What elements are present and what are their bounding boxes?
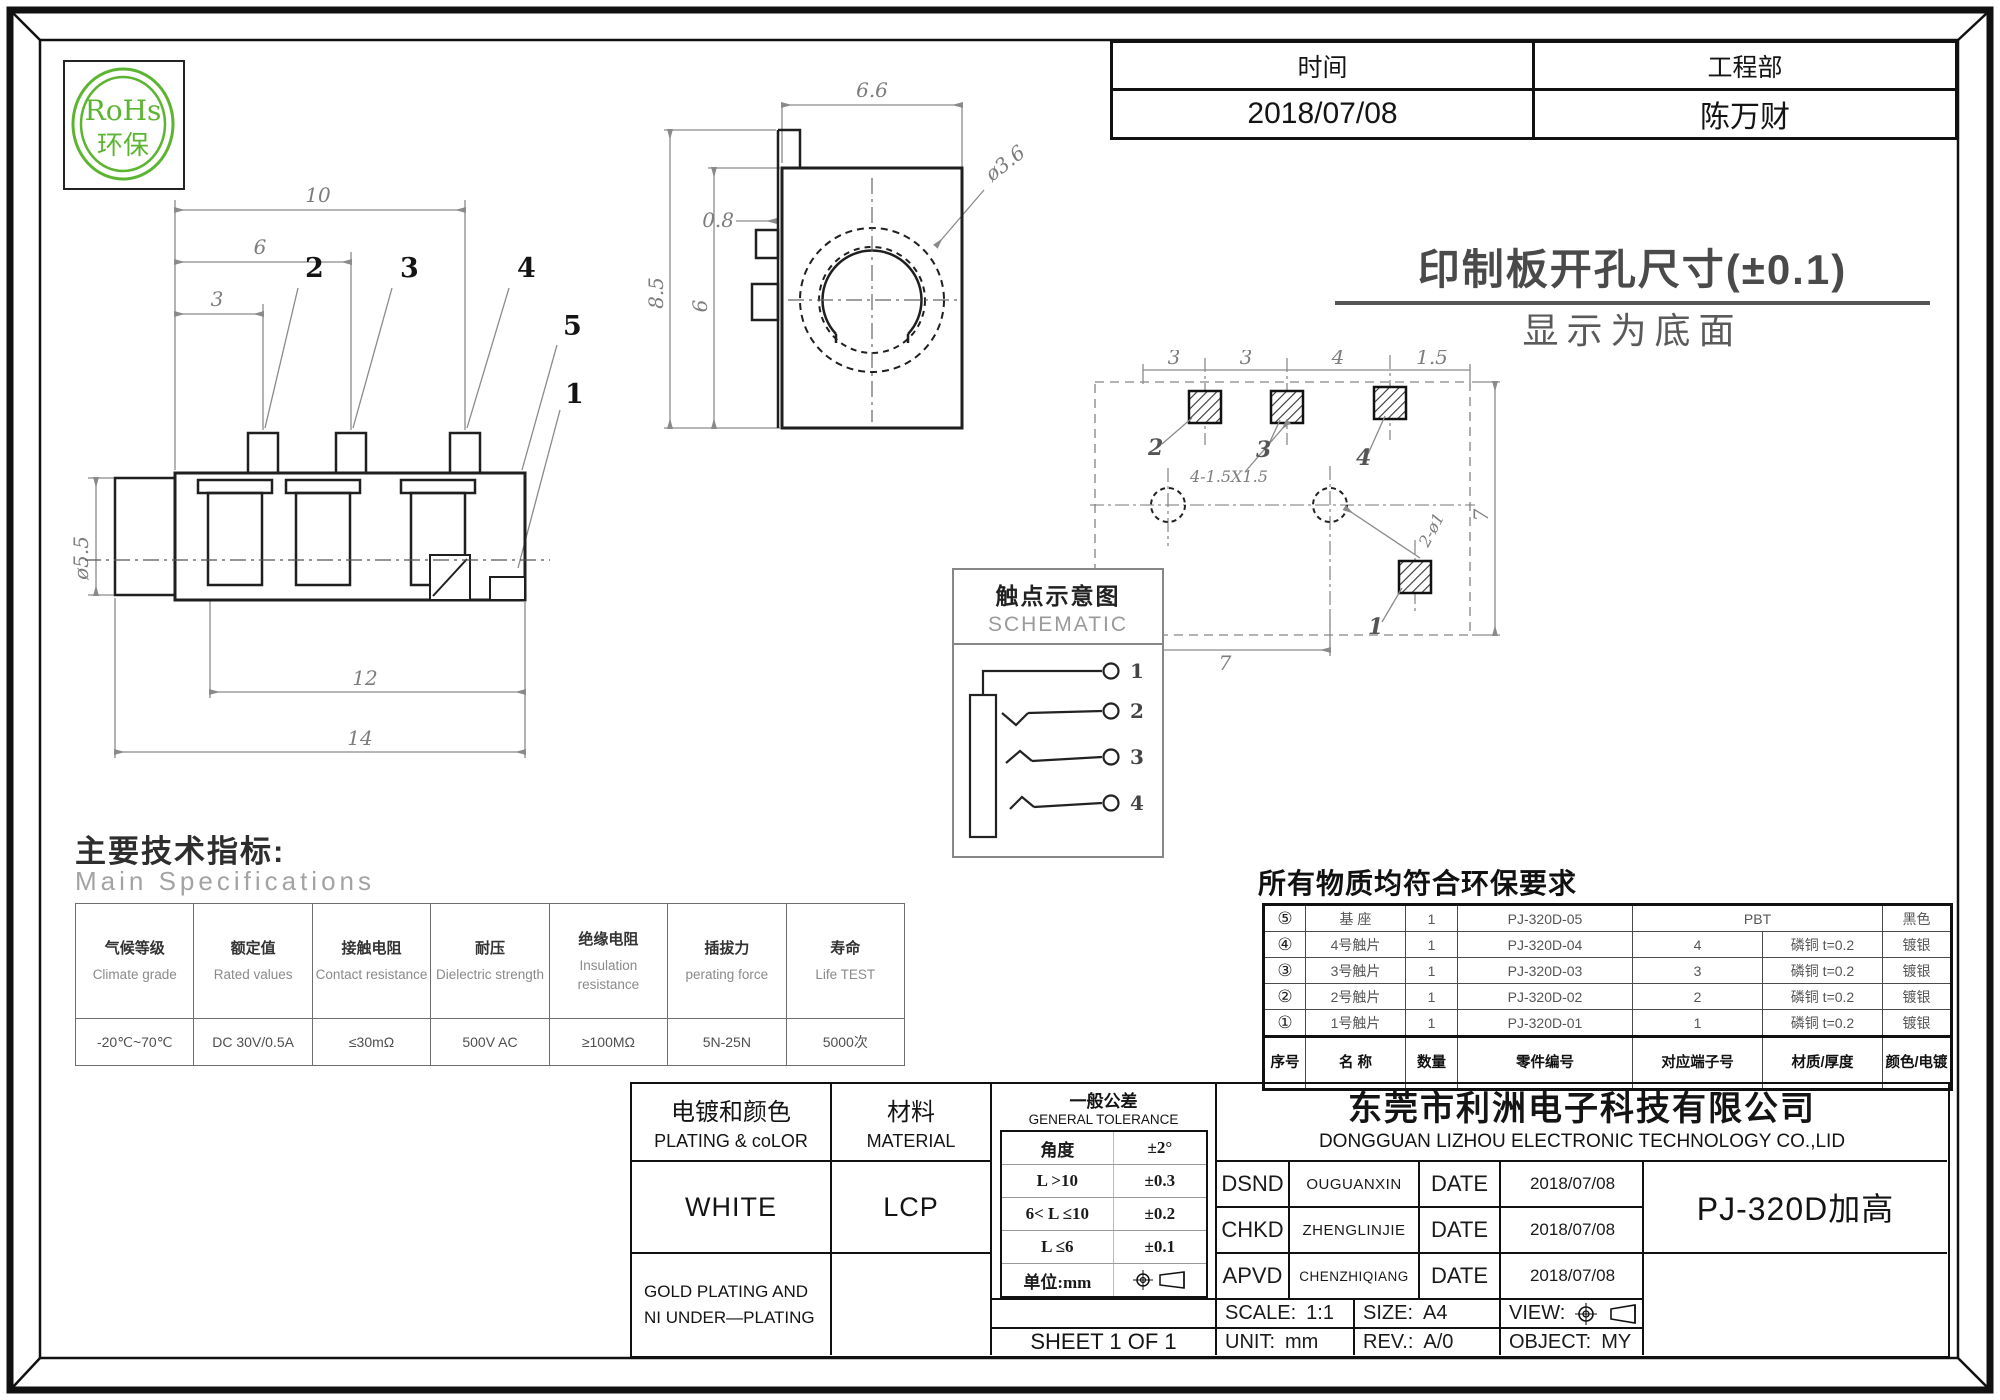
scale-size-view-row: SCALE: 1:1 SIZE: A4 VIEW:: [1217, 1300, 1644, 1329]
dim-8-5: 8.5: [644, 277, 668, 309]
front-dim-texts: 6.6 0.8 8.5 6 ø3.6: [644, 78, 1030, 312]
bom-row-3: ③ 3号触片 1 PJ-320D-03 3 磷铜 t=0.2 镀银: [1264, 958, 1952, 984]
contact-3: 3: [1130, 745, 1144, 769]
spec-value-dielectric: 500V AC: [431, 1019, 549, 1066]
bom-title: 所有物质均符合环保要求: [1258, 862, 1577, 902]
third-angle-cone-icon: [1157, 1271, 1187, 1289]
part-name-cell: PJ-320D加高: [1644, 1162, 1947, 1254]
tolerance-block: 一般公差 GENERAL TOLERANCE 角度±2° L >10±0.3 6…: [992, 1084, 1217, 1300]
plating-note-cell: GOLD PLATING AND NI UNDER—PLATING: [632, 1254, 832, 1355]
pcb-hole-note: 2-ø1: [1414, 510, 1448, 551]
spec-value-insulation: ≥100MΩ: [549, 1019, 667, 1066]
pcb-dim-1-5a: 1.5: [1416, 350, 1448, 369]
pcb-hole-title: 印制板开孔尺寸(±0.1): [1335, 236, 1930, 305]
object-cell: OBJECT: MY: [1501, 1329, 1644, 1355]
spec-heading-en: Main Specifications: [75, 866, 375, 897]
unit-mm-label: 单位:mm: [1002, 1264, 1115, 1296]
contact-2: 2: [1130, 699, 1144, 723]
pcb-bottom-view-label: 显示为底面: [1335, 302, 1930, 354]
pcb-label-2: 2: [1147, 435, 1163, 461]
projection-symbols-small: [1114, 1264, 1205, 1296]
spec-header-row: 气候等级Climate grade 额定值Rated values 接触电阻Co…: [76, 904, 905, 1019]
front-body-outline: [752, 130, 962, 428]
dim-12: 12: [352, 666, 377, 690]
unit-cell: UNIT: mm: [1217, 1329, 1355, 1355]
front-dim-lines: [664, 105, 984, 428]
spec-value-life: 5000次: [786, 1019, 904, 1066]
plating-header: 电镀和颜色 PLATING & coLOR: [632, 1084, 832, 1162]
material-value-cell: LCP: [832, 1162, 992, 1254]
schematic-contact-numbers: 1 2 3 4: [1130, 659, 1144, 815]
dept-value: 陈万财: [1535, 91, 1955, 137]
pin-label-2: 2: [305, 253, 324, 284]
sign-row-chkd: CHKD ZHENGLINJIE DATE 2018/07/08: [1217, 1208, 1644, 1254]
dim-3: 3: [211, 287, 224, 311]
company-header: 东莞市利洲电子科技有限公司 DONGGUAN LIZHOU ELECTRONIC…: [1217, 1084, 1947, 1162]
bom-row-5: ⑤ 基 座 1 PJ-320D-05 PBT 黑色: [1264, 905, 1952, 932]
material-header: 材料 MATERIAL: [832, 1084, 992, 1162]
view-target-icon: [1575, 1303, 1597, 1325]
empty-cell-material: [832, 1254, 992, 1355]
side-body-outline: [115, 433, 525, 600]
size-cell: SIZE: A4: [1355, 1300, 1501, 1327]
front-view-drawing: 6.6 0.8 8.5 6 ø3.6: [640, 78, 1060, 450]
schematic-title-cn: 触点示意图: [954, 577, 1162, 611]
pcb-pad-note: 4-1.5X1.5: [1189, 467, 1268, 486]
spec-value-contact: ≤30mΩ: [312, 1019, 430, 1066]
pcb-pads: [1189, 387, 1431, 593]
spec-table: 气候等级Climate grade 额定值Rated values 接触电阻Co…: [75, 903, 905, 1066]
bom-row-1: ① 1号触片 1 PJ-320D-01 1 磷铜 t=0.2 镀银: [1264, 1010, 1952, 1037]
spec-col-contact: 接触电阻Contact resistance: [312, 904, 430, 1019]
side-view-drawing: 10 6 3 ø5.5 12 14 2 3 4: [60, 140, 640, 790]
view-cone-icon: [1607, 1304, 1639, 1324]
pcb-label-4: 4: [1356, 445, 1371, 471]
dim-6b: 6: [688, 299, 712, 312]
pin-label-1: 1: [565, 379, 584, 410]
pcb-label-1: 1: [1368, 614, 1383, 640]
bom-table: ⑤ 基 座 1 PJ-320D-05 PBT 黑色 ④ 4号触片 1 PJ-32…: [1262, 903, 1953, 1091]
dim-14: 14: [347, 726, 372, 750]
tolerance-spacer-cell: [992, 1300, 1217, 1329]
dim-dia-5-5: ø5.5: [69, 536, 93, 581]
front-centerlines: [788, 178, 958, 422]
schematic-title-en: SCHEMATIC: [954, 613, 1162, 645]
spec-value-row: -20℃~70℃ DC 30V/0.5A ≤30mΩ 500V AC ≥100M…: [76, 1019, 905, 1066]
drawing-sheet: RoHs 环保 时间 工程部 2018/07/08 陈万财: [0, 0, 2000, 1400]
spec-col-climate: 气候等级Climate grade: [76, 904, 194, 1019]
spec-col-rated: 额定值Rated values: [194, 904, 312, 1019]
dim-10: 10: [305, 183, 331, 207]
bom-row-2: ② 2号触片 1 PJ-320D-02 2 磷铜 t=0.2 镀银: [1264, 984, 1952, 1010]
pin-label-5: 5: [563, 311, 582, 342]
contact-4: 4: [1130, 791, 1144, 815]
third-angle-target-icon: [1133, 1270, 1153, 1290]
title-block: 电镀和颜色 PLATING & coLOR 材料 MATERIAL 一般公差 G…: [630, 1082, 1950, 1358]
pcb-dim-7-right: 7: [1469, 508, 1493, 521]
scale-cell: SCALE: 1:1: [1217, 1300, 1355, 1327]
pin-label-4: 4: [517, 253, 536, 284]
pcb-label-3: 3: [1256, 437, 1271, 463]
bom-row-4: ④ 4号触片 1 PJ-320D-04 4 磷铜 t=0.2 镀银: [1264, 932, 1952, 958]
tolerance-table: 角度±2° L >10±0.3 6< L ≤10±0.2 L ≤6±0.1 单位…: [1000, 1130, 1208, 1298]
time-label: 时间: [1113, 43, 1535, 91]
dim-6-6: 6.6: [856, 78, 888, 102]
pcb-dim-3b: 3: [1240, 350, 1253, 369]
rev-cell: REV.: A/0: [1355, 1329, 1501, 1355]
view-cell: VIEW:: [1501, 1300, 1644, 1327]
spec-col-dielectric: 耐压Dielectric strength: [431, 904, 549, 1019]
sign-row-apvd: APVD CHENZHIQIANG DATE 2018/07/08: [1217, 1254, 1644, 1300]
dim-0-8: 0.8: [702, 208, 734, 232]
spec-value-rated: DC 30V/0.5A: [194, 1019, 312, 1066]
spec-value-force: 5N-25N: [668, 1019, 786, 1066]
time-value: 2018/07/08: [1113, 91, 1535, 137]
schematic-box: 触点示意图 SCHEMATIC 1 2 3 4: [952, 568, 1164, 858]
side-pin-labels: 2 3 4 5 1: [305, 253, 584, 410]
spec-value-climate: -20℃~70℃: [76, 1019, 194, 1066]
spec-col-insulation: 绝缘电阻Insulation resistance: [549, 904, 667, 1019]
rohs-text: RoHs: [85, 94, 162, 127]
schematic-diagram: 1 2 3 4: [954, 645, 1162, 845]
dim-6: 6: [254, 235, 267, 259]
spec-heading-cn: 主要技术指标:: [75, 826, 285, 871]
spec-col-life: 寿命Life TEST: [786, 904, 904, 1019]
revision-info-table: 时间 工程部 2018/07/08 陈万财: [1110, 40, 1958, 140]
pcb-dim-3a: 3: [1168, 350, 1181, 369]
empty-cell-part: [1644, 1254, 1947, 1355]
dept-label: 工程部: [1535, 43, 1955, 91]
sheet-cell: SHEET 1 OF 1: [992, 1329, 1217, 1355]
plating-value-cell: WHITE: [632, 1162, 832, 1254]
unit-rev-object-row: UNIT: mm REV.: A/0 OBJECT: MY: [1217, 1329, 1644, 1355]
pin-label-3: 3: [400, 253, 419, 284]
contact-1: 1: [1130, 659, 1144, 683]
dim-dia-3-6: ø3.6: [980, 140, 1030, 187]
pcb-dim-4: 4: [1331, 350, 1345, 369]
spec-col-force: 插拔力perating force: [668, 904, 786, 1019]
pcb-dim-7-bottom: 7: [1219, 651, 1232, 675]
sign-row-dsnd: DSND OUGUANXIN DATE 2018/07/08: [1217, 1162, 1644, 1208]
